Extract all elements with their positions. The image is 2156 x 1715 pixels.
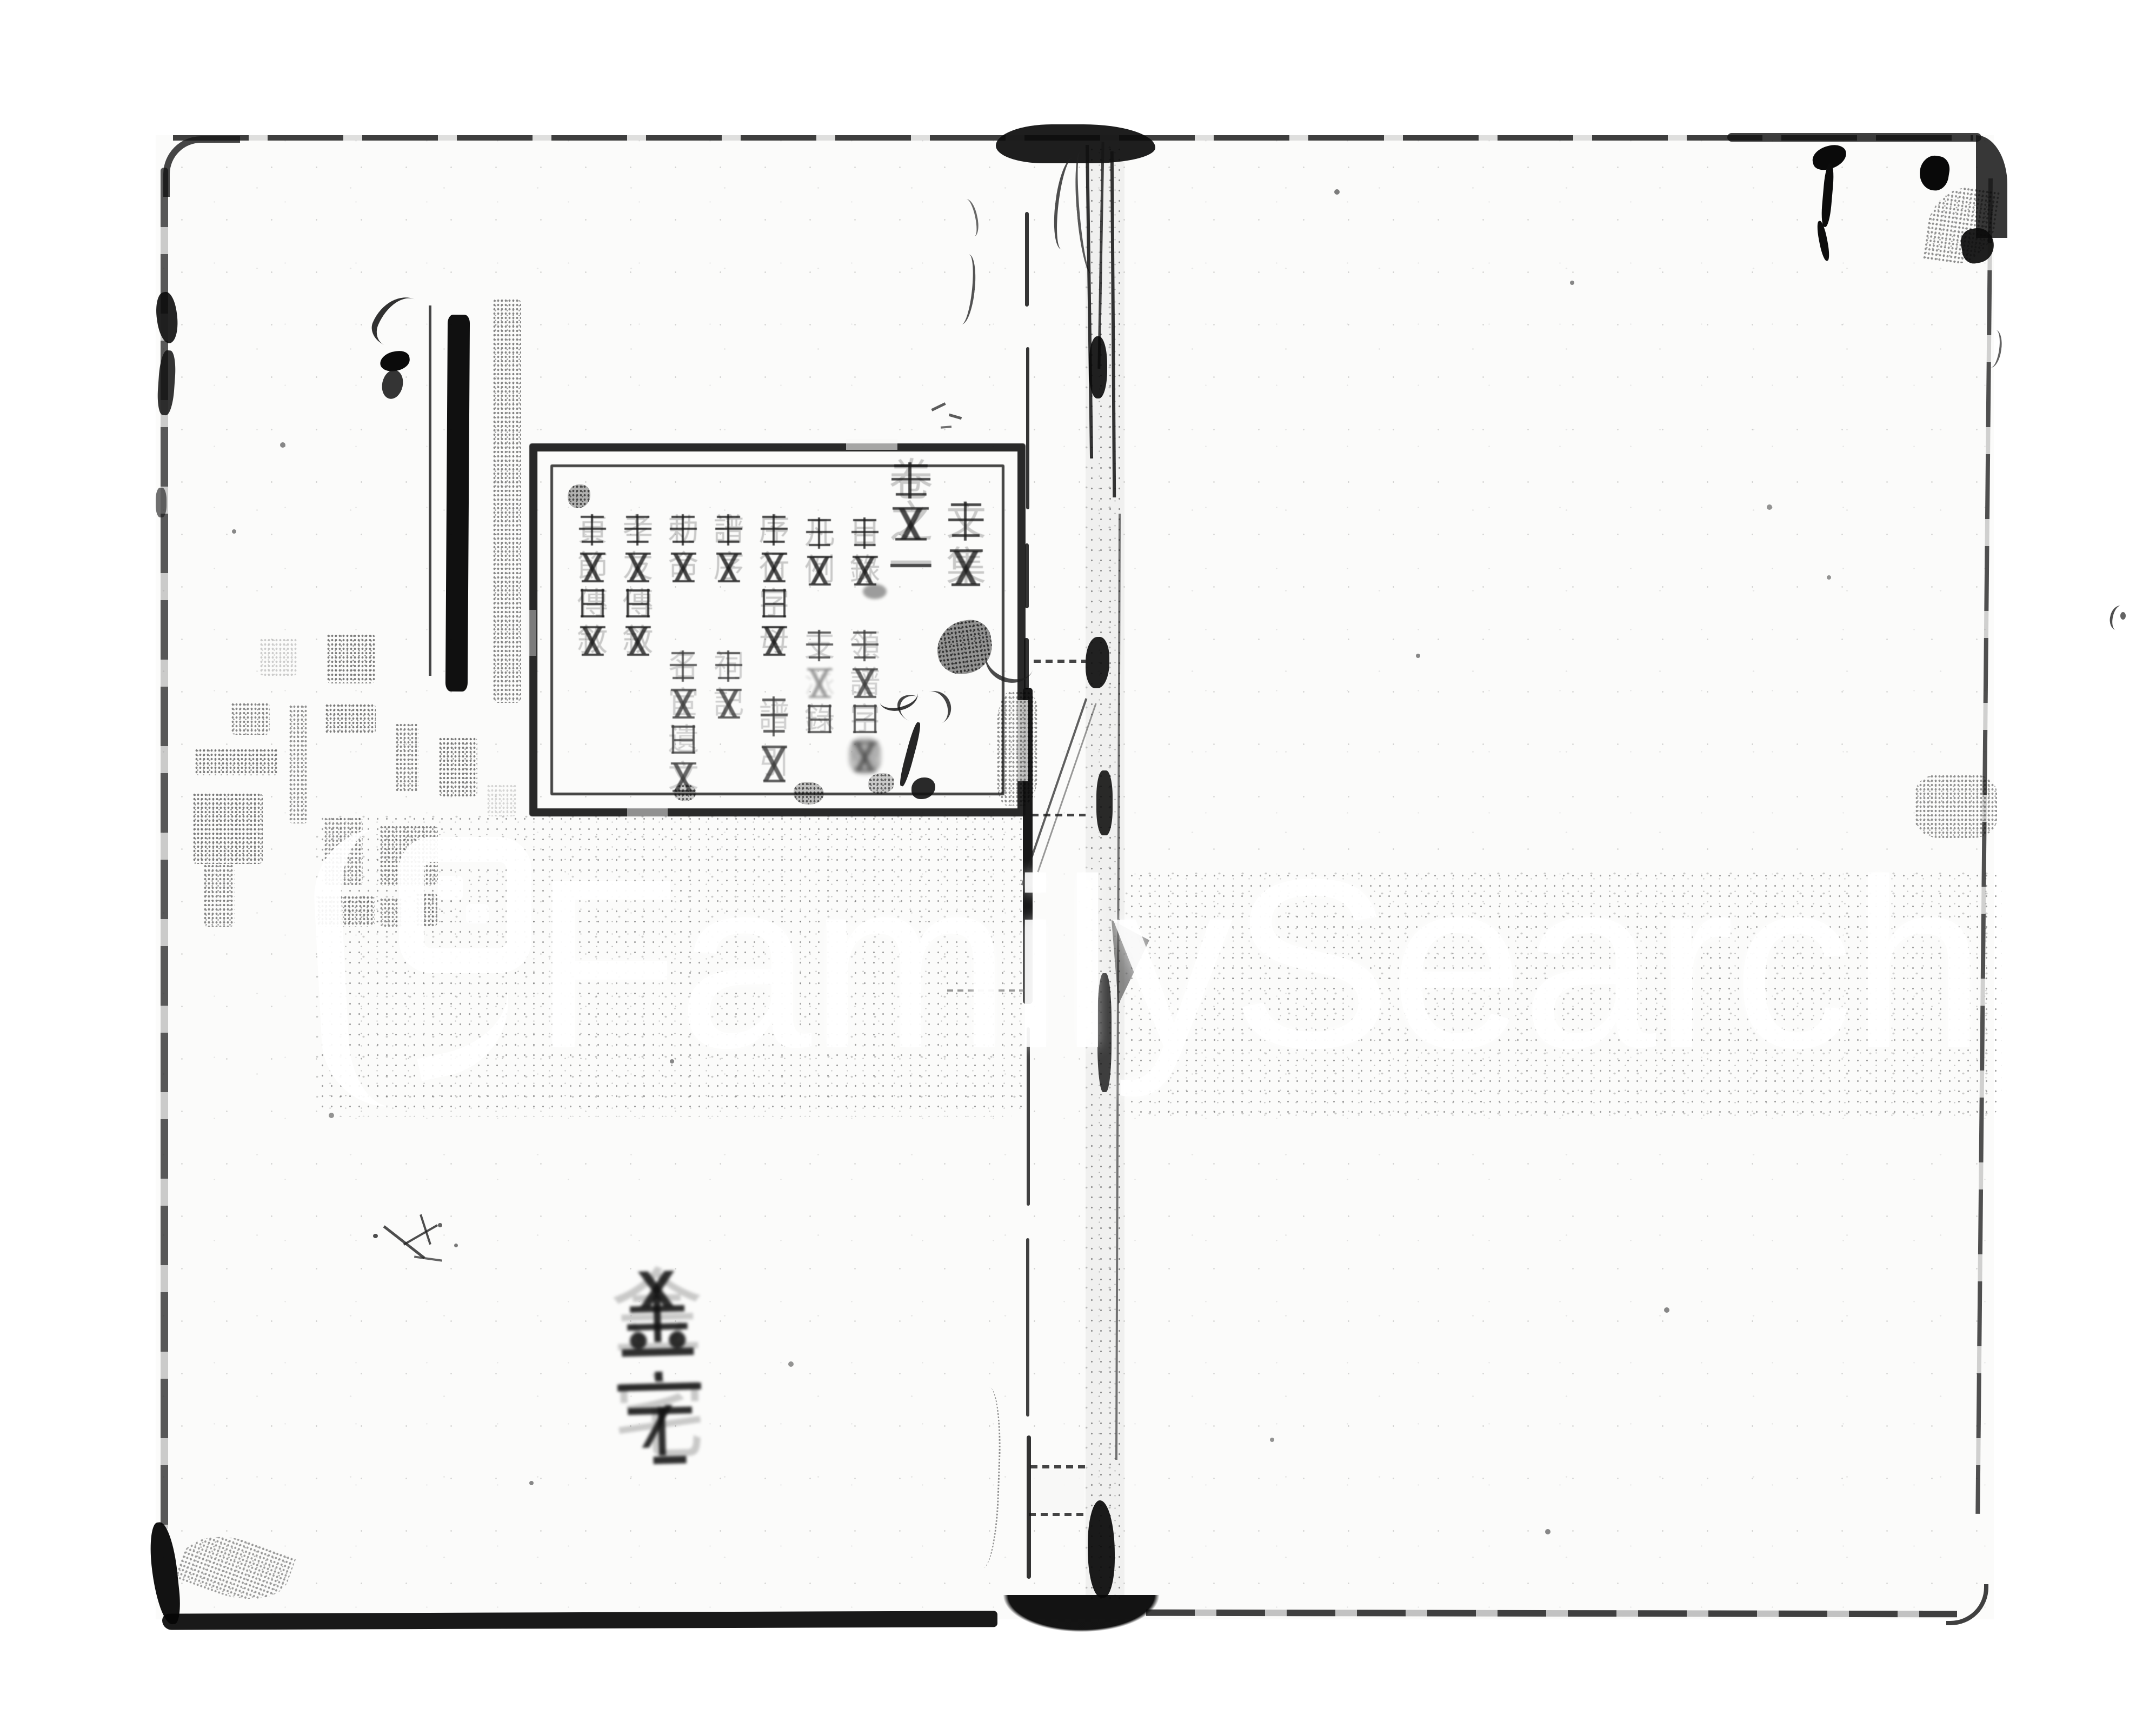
watermark-wordmark: FamilySearch. [533, 843, 2049, 1084]
familysearch-square-logo-icon [399, 837, 531, 973]
logo-inner-tick [438, 876, 463, 900]
logo-inner-tick [466, 904, 489, 923]
logo-swoosh [400, 958, 522, 1081]
watermark: FamilySearch. [0, 0, 2156, 1715]
scanned-book-page: 卷之一 文集 目錄 領譜字號 凡例 支派錄 序行字母 譜引 譜序 祠記 勅命 名… [0, 0, 2156, 1715]
